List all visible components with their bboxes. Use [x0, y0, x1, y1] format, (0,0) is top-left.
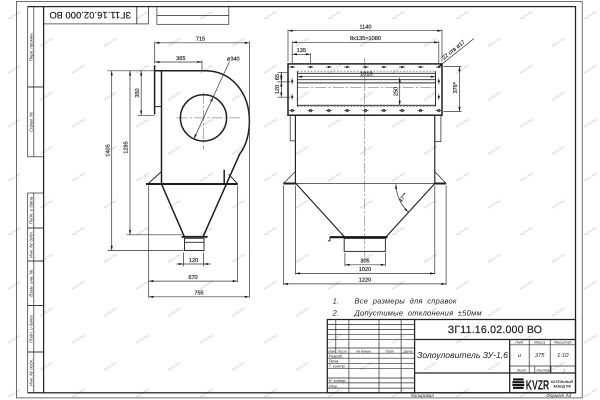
svg-text:Дата: Дата — [402, 349, 412, 353]
svg-text:1: 1 — [563, 368, 565, 372]
svg-text:Справ. №: Справ. № — [29, 112, 34, 132]
svg-text:1220: 1220 — [359, 278, 371, 284]
svg-text:Лист: Лист — [337, 349, 347, 353]
svg-text:Лит.: Лит. — [514, 341, 524, 345]
svg-text:376*: 376* — [453, 81, 459, 93]
svg-text:Масса: Масса — [534, 341, 545, 345]
svg-text:1285: 1285 — [124, 141, 130, 153]
svg-text:Все размеры для справок: Все размеры для справок — [355, 296, 457, 305]
svg-text:ø340: ø340 — [227, 56, 240, 62]
svg-text:670: 670 — [188, 275, 197, 281]
svg-text:1010: 1010 — [360, 72, 372, 78]
svg-text:1140: 1140 — [359, 24, 371, 30]
svg-text:Перв. примен.: Перв. примен. — [29, 32, 34, 61]
svg-text:8х135=1080: 8х135=1080 — [350, 36, 381, 42]
svg-text:ЗАВОД РФ: ЗАВОД РФ — [553, 385, 571, 389]
svg-text:250: 250 — [393, 87, 399, 96]
svg-text:Лист: Лист — [516, 368, 527, 372]
svg-text:1:10: 1:10 — [557, 352, 569, 359]
svg-text:365: 365 — [176, 56, 185, 62]
svg-text:Масштаб: Масштаб — [554, 341, 572, 345]
svg-text:ЗГ11.16.02.000 ВО: ЗГ11.16.02.000 ВО — [49, 10, 131, 20]
svg-text:755: 755 — [194, 291, 203, 297]
svg-text:KVZR: KVZR — [526, 377, 550, 392]
svg-text:350: 350 — [135, 88, 141, 97]
svg-text:Формат А3: Формат А3 — [546, 393, 572, 398]
svg-text:ЗГ11.16.02.000 ВО: ЗГ11.16.02.000 ВО — [448, 324, 543, 336]
svg-text:Подп. и дата: Подп. и дата — [29, 315, 34, 343]
svg-text:375: 375 — [535, 352, 545, 359]
svg-text:Подп. и дата: Подп. и дата — [29, 196, 34, 224]
svg-text:1020: 1020 — [359, 267, 371, 273]
svg-text:Т. контр.: Т. контр. — [329, 363, 346, 368]
svg-text:715: 715 — [196, 37, 205, 43]
svg-text:Инв. № подл.: Инв. № подл. — [29, 359, 34, 386]
svg-text:Листов: Листов — [535, 368, 550, 372]
svg-text:Допустимые отклонения ±50мм: Допустимые отклонения ±50мм — [354, 309, 482, 318]
svg-text:1405: 1405 — [105, 144, 111, 156]
svg-text:Изм: Изм — [328, 349, 335, 353]
svg-text:№ докум.: № докум. — [356, 349, 371, 353]
svg-text:65: 65 — [275, 74, 281, 80]
svg-text:Инв. № дубл.: Инв. № дубл. — [29, 231, 34, 258]
svg-text:2.: 2. — [332, 309, 340, 318]
svg-text:Утв.: Утв. — [329, 383, 338, 388]
svg-text:120: 120 — [275, 85, 281, 94]
svg-text:Копировал: Копировал — [411, 393, 434, 398]
svg-text:305: 305 — [360, 259, 369, 265]
svg-text:120: 120 — [189, 258, 198, 264]
svg-text:Взам. инв. №: Взам. инв. № — [29, 269, 34, 296]
svg-text:Золоуловитель ЗУ-1,6: Золоуловитель ЗУ-1,6 — [417, 350, 508, 360]
svg-text:1.: 1. — [333, 296, 340, 305]
svg-text:135: 135 — [297, 48, 306, 54]
svg-text:Подп.: Подп. — [385, 349, 394, 353]
svg-text:КОТЕЛЬНЫЙ: КОТЕЛЬНЫЙ — [551, 379, 574, 384]
